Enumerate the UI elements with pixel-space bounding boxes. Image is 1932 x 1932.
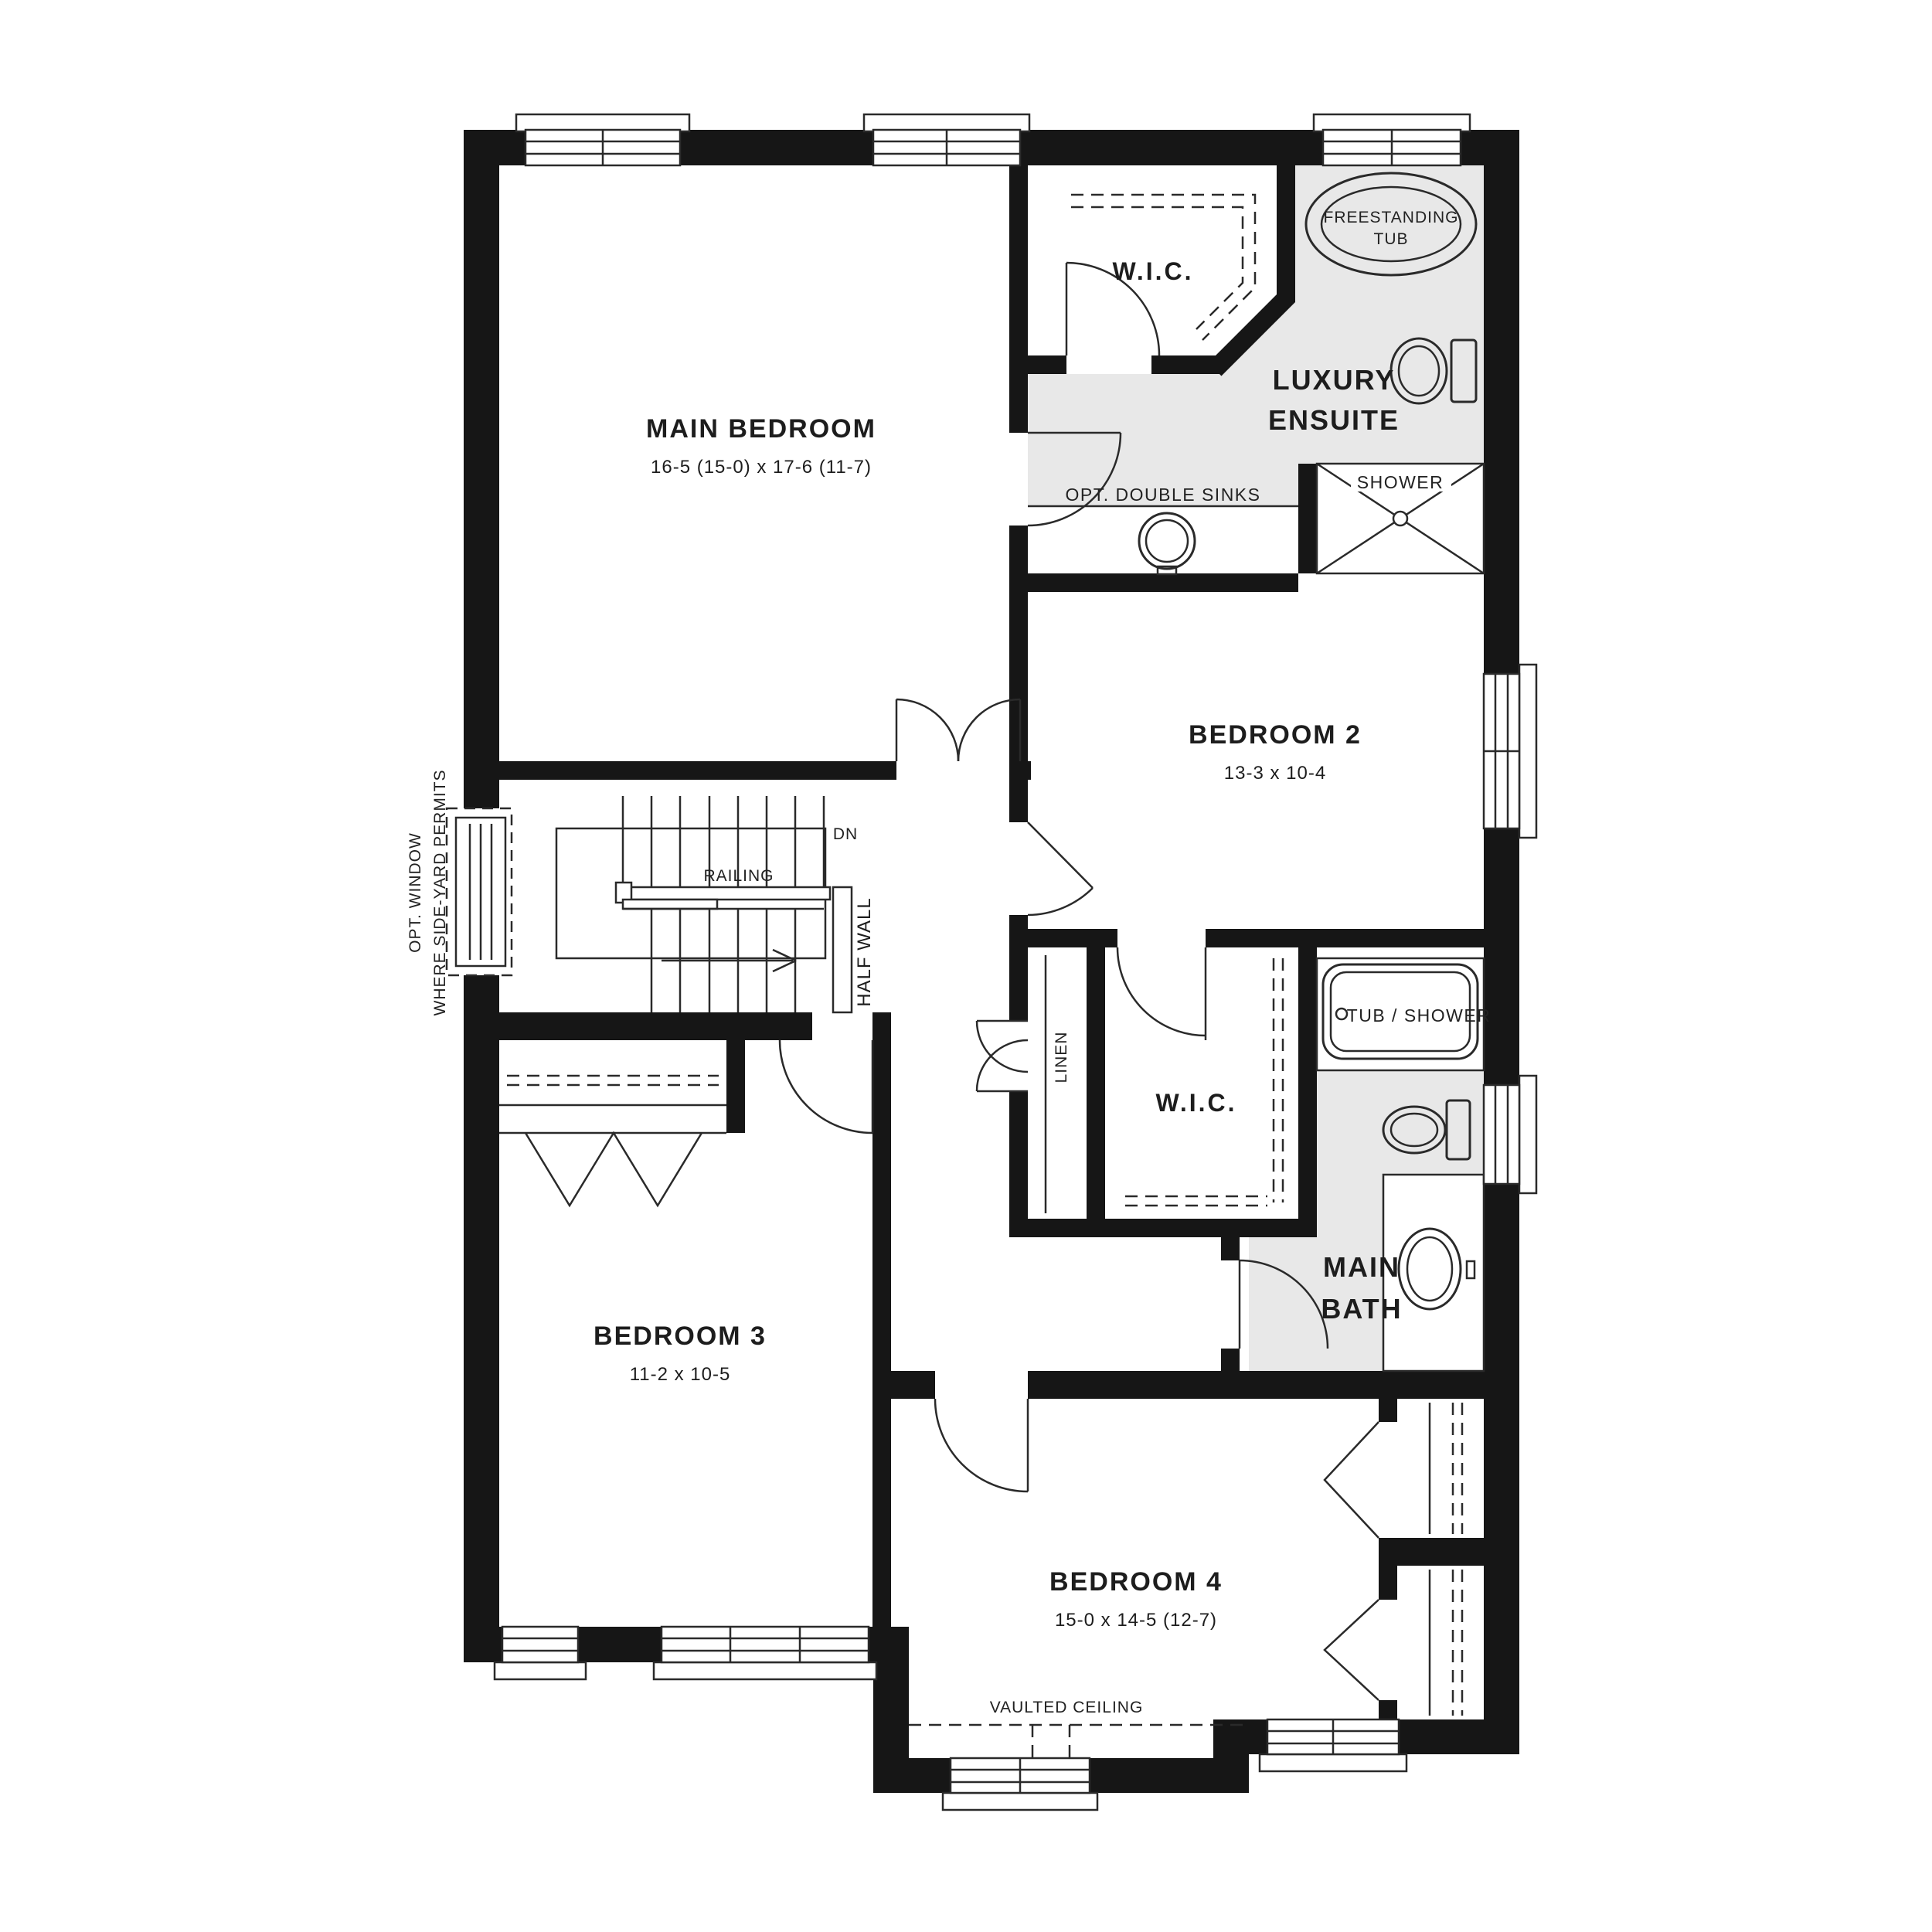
freestanding-tub-label-1: FREESTANDING: [1324, 209, 1459, 226]
bedroom2-door: [1028, 822, 1093, 915]
wic-main-label: W.I.C.: [1112, 257, 1193, 285]
main-bedroom-double-door: [896, 699, 1020, 761]
labels: MAIN BEDROOM 16-5 (15-0) x 17-6 (11-7) W…: [406, 209, 1491, 1716]
bedroom3-dims: 11-2 x 10-5: [630, 1364, 731, 1385]
wic-hall-label: W.I.C.: [1155, 1089, 1236, 1117]
bedroom4-label: BEDROOM 4: [1049, 1567, 1223, 1597]
window-main-bath: [1484, 1076, 1536, 1193]
shower-label: SHOWER: [1357, 472, 1444, 492]
window-top-2: [864, 114, 1029, 165]
window-top-1: [516, 114, 689, 165]
bedroom4-closet1-doors: [1325, 1422, 1379, 1538]
floor-plan: MAIN BEDROOM 16-5 (15-0) x 17-6 (11-7) W…: [0, 0, 1932, 1932]
bedroom2-dims: 13-3 x 10-4: [1224, 763, 1326, 784]
wic-hall-door: [1117, 947, 1206, 1040]
vaulted-ceiling-lines: [909, 1725, 1249, 1758]
luxury-ensuite-label-1: LUXURY: [1273, 364, 1396, 396]
stairs-railing-label: RAILING: [703, 867, 774, 885]
staircase: [556, 796, 852, 1012]
linen-double-door: [977, 1021, 1028, 1091]
opt-window-label-1: OPT. WINDOW: [406, 832, 424, 953]
bedroom3-door: [780, 1040, 872, 1133]
main-bath-label-2: BATH: [1321, 1293, 1402, 1325]
opt-double-sinks-label: OPT. DOUBLE SINKS: [1065, 485, 1260, 505]
main-bedroom-dims: 16-5 (15-0) x 17-6 (11-7): [651, 457, 872, 478]
bedroom4-dims: 15-0 x 14-5 (12-7): [1055, 1610, 1217, 1631]
luxury-ensuite-label-2: ENSUITE: [1268, 404, 1400, 436]
linen-label: LINEN: [1053, 1032, 1070, 1083]
stair-railing: [616, 883, 830, 909]
optional-window: [447, 808, 512, 975]
window-bedroom4-center: [943, 1758, 1097, 1810]
bedroom2-label: BEDROOM 2: [1189, 720, 1362, 750]
window-bedroom2: [1484, 665, 1536, 838]
half-wall-label: HALF WALL: [854, 897, 875, 1006]
opt-window-label-2: WHERE SIDE-YARD PERMITS: [431, 770, 449, 1016]
window-bedroom4-right: [1260, 1719, 1406, 1771]
freestanding-tub-label-2: TUB: [1374, 230, 1409, 248]
main-bedroom-label: MAIN BEDROOM: [646, 414, 876, 444]
window-top-3: [1314, 114, 1470, 165]
tub-shower-label: TUB / SHOWER: [1347, 1005, 1492, 1026]
stairs-dn-label: DN: [833, 825, 858, 843]
bedroom4-door: [935, 1399, 1028, 1492]
stair-direction-arrow: [662, 950, 796, 971]
vaulted-ceiling-label: VAULTED CEILING: [990, 1699, 1144, 1716]
bedroom3-label: BEDROOM 3: [594, 1321, 767, 1351]
bedroom3-closet-bifold-doors: [526, 1133, 702, 1206]
half-wall: [833, 887, 852, 1012]
main-bath-label-1: MAIN: [1323, 1251, 1400, 1283]
bedroom4-closet2-doors: [1325, 1600, 1379, 1700]
window-bedroom3-small: [495, 1627, 586, 1679]
window-bedroom3-large: [654, 1627, 876, 1679]
